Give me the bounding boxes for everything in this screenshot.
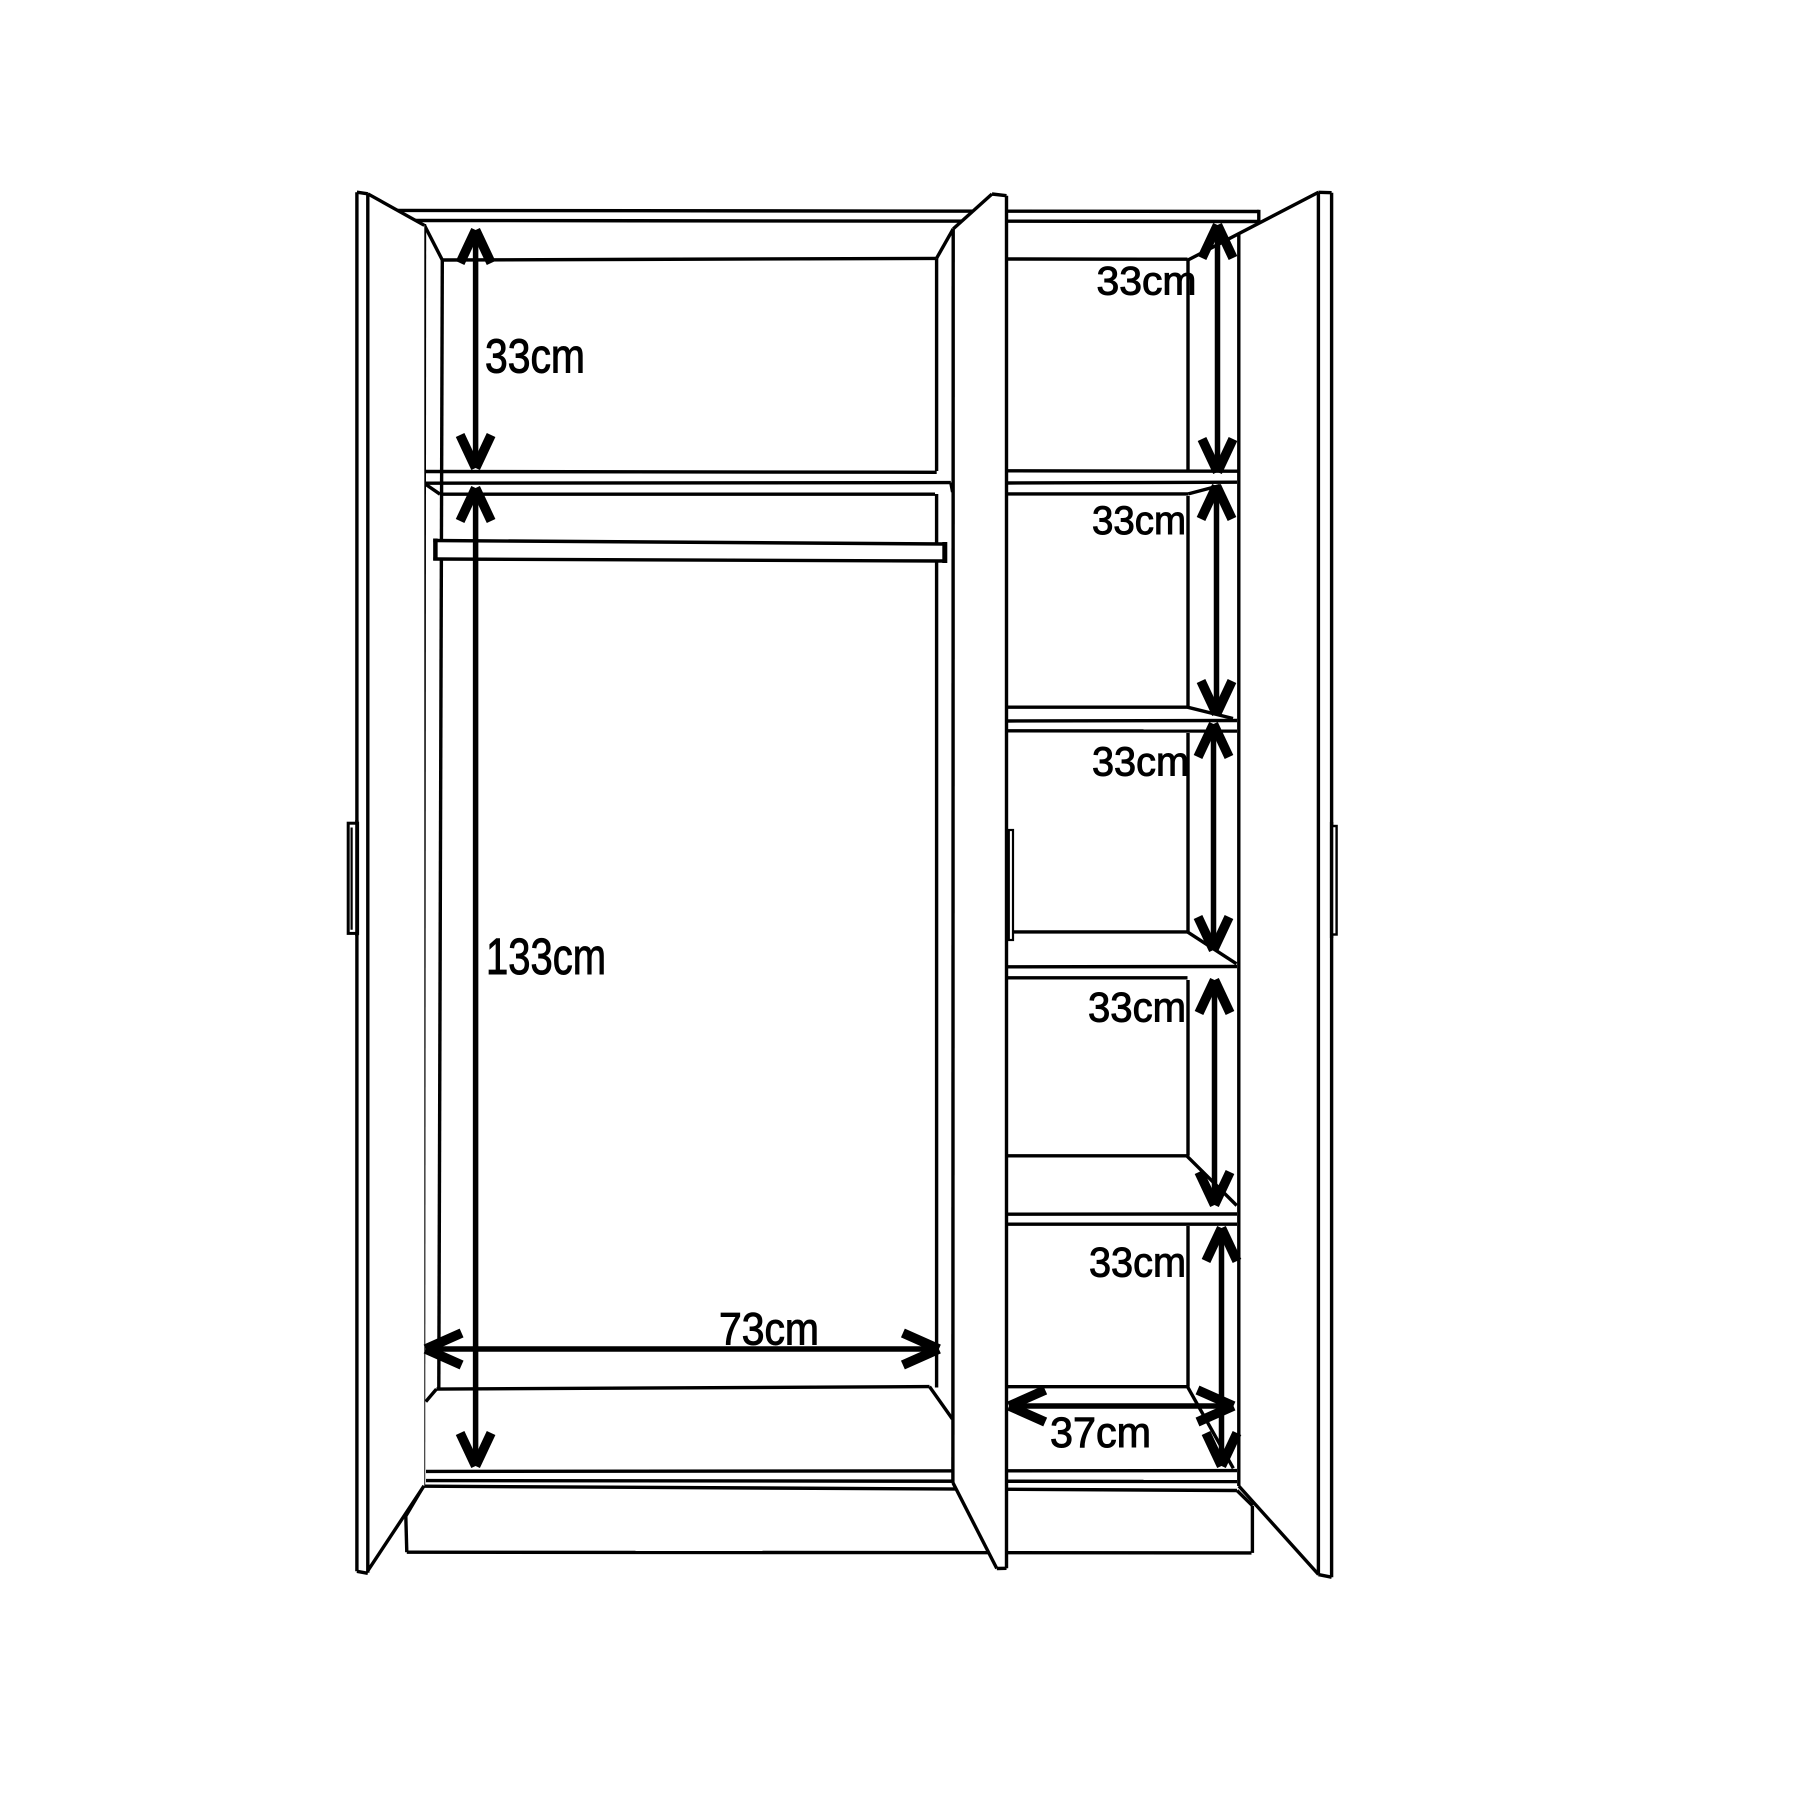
- svg-text:33cm: 33cm: [1097, 259, 1197, 303]
- svg-text:37cm: 37cm: [1050, 1409, 1151, 1457]
- svg-text:33cm: 33cm: [485, 330, 585, 383]
- svg-text:33cm: 33cm: [1089, 1239, 1186, 1286]
- svg-text:33cm: 33cm: [1092, 499, 1186, 543]
- svg-text:33cm: 33cm: [1092, 739, 1189, 785]
- svg-text:33cm: 33cm: [1088, 983, 1186, 1030]
- svg-text:133cm: 133cm: [486, 928, 606, 985]
- svg-text:73cm: 73cm: [719, 1303, 819, 1354]
